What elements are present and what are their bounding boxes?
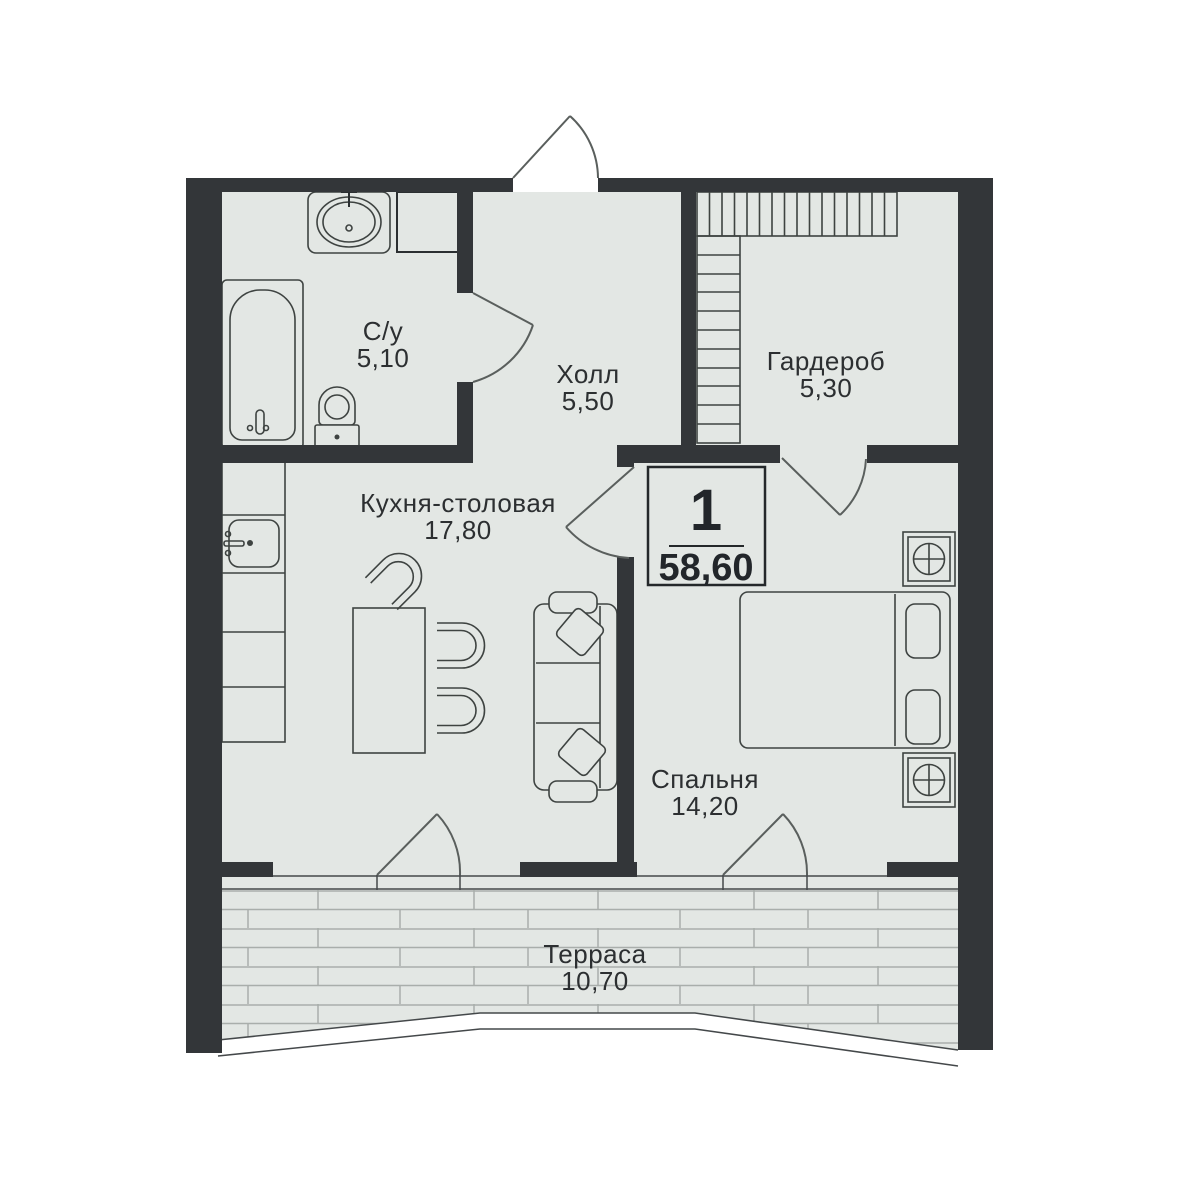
wall-segment bbox=[617, 557, 634, 862]
wall-segment bbox=[186, 445, 473, 463]
floor-plan-svg: С/у 5,10 Холл 5,50 Гардероб 5,30 Кухня-с… bbox=[0, 0, 1181, 1181]
room-label-bathroom: С/у bbox=[363, 316, 404, 346]
room-label-hall: Холл bbox=[556, 359, 619, 389]
washbasin-icon bbox=[308, 185, 390, 253]
wall-segment bbox=[598, 178, 993, 192]
bathtub-icon bbox=[222, 280, 303, 449]
floor-plan: С/у 5,10 Холл 5,50 Гардероб 5,30 Кухня-с… bbox=[0, 0, 1181, 1181]
wall-segment bbox=[958, 178, 993, 1050]
nightstand-icon bbox=[903, 532, 955, 586]
room-label-bedroom: Спальня bbox=[651, 764, 759, 794]
badge-rooms-count: 1 bbox=[690, 478, 722, 543]
kitchen-counter bbox=[222, 460, 285, 742]
terrace-threshold bbox=[222, 875, 958, 890]
dining-table-icon bbox=[353, 608, 425, 753]
room-area-bathroom: 5,10 bbox=[357, 343, 410, 373]
toilet-icon bbox=[315, 387, 359, 449]
wall-segment bbox=[520, 862, 637, 877]
entrance-door-arc bbox=[513, 116, 598, 178]
room-label-terrace: Терраса bbox=[543, 939, 646, 969]
room-area-terrace: 10,70 bbox=[561, 966, 629, 996]
wall-segment bbox=[457, 178, 473, 293]
sofa-icon bbox=[534, 592, 617, 802]
room-label-kitchen: Кухня-столовая bbox=[360, 488, 556, 518]
room-area-bedroom: 14,20 bbox=[671, 791, 739, 821]
unit-info-badge: 1 58,60 bbox=[648, 467, 765, 589]
wall-segment bbox=[887, 862, 958, 877]
badge-total-area: 58,60 bbox=[658, 547, 753, 589]
room-area-kitchen: 17,80 bbox=[424, 515, 492, 545]
wall-segment bbox=[186, 178, 222, 1053]
wall-segment bbox=[218, 862, 273, 877]
room-area-hall: 5,50 bbox=[562, 386, 615, 416]
wall-segment bbox=[617, 445, 780, 463]
wall-segment bbox=[681, 178, 696, 445]
room-area-wardrobe: 5,30 bbox=[800, 373, 853, 403]
bed-icon bbox=[740, 592, 950, 748]
room-label-wardrobe: Гардероб bbox=[767, 346, 885, 376]
wall-segment bbox=[617, 445, 634, 467]
nightstand-icon bbox=[903, 753, 955, 807]
wall-segment bbox=[867, 445, 958, 463]
